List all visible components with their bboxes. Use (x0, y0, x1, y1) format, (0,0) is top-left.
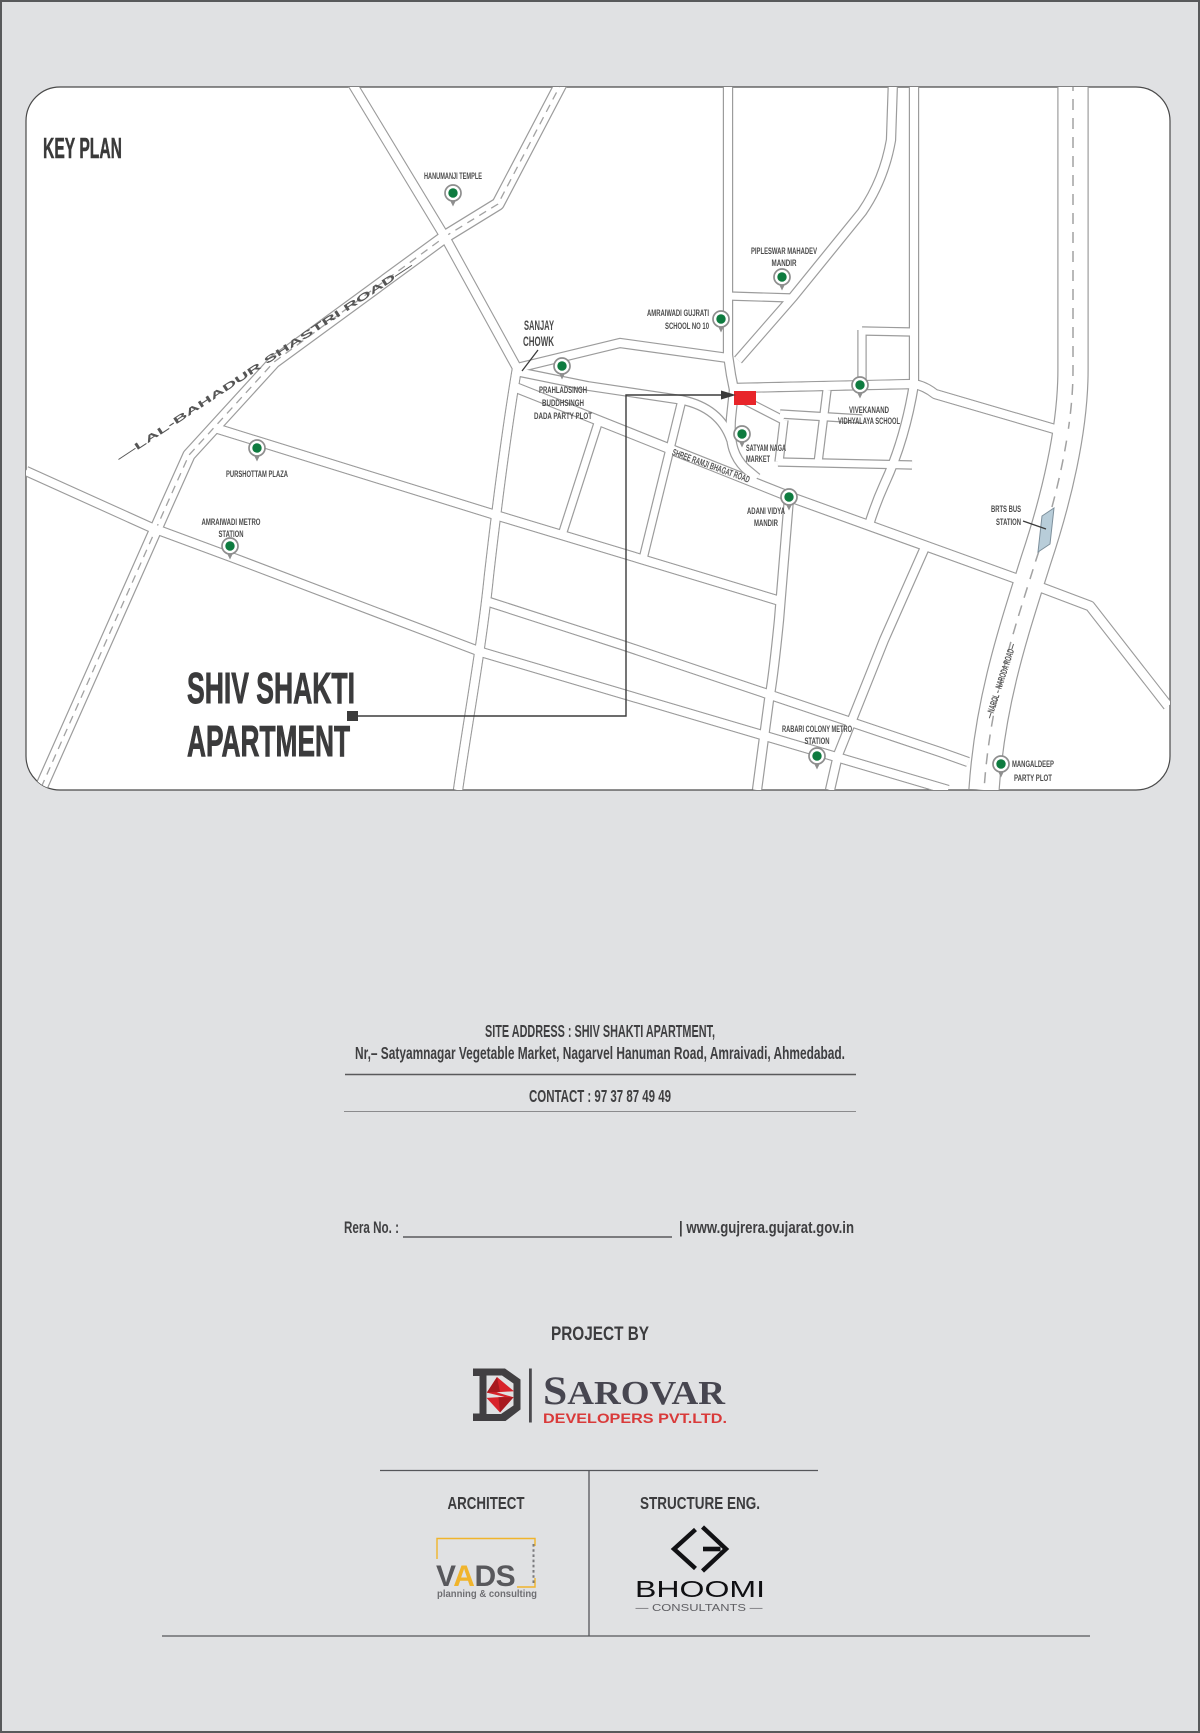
svg-text:BHOOMI: BHOOMI (635, 1576, 765, 1602)
svg-text:ADANI VIDYA: ADANI VIDYA (747, 506, 785, 517)
svg-text:AMRAIWADI GUJRATI: AMRAIWADI GUJRATI (647, 308, 709, 319)
svg-text:ARCHITECT: ARCHITECT (448, 1493, 525, 1513)
svg-text:Rera No. :: Rera No. : (344, 1219, 399, 1237)
svg-text:CONTACT : 97 37 87 49 49: CONTACT : 97 37 87 49 49 (529, 1086, 671, 1106)
svg-text:BRTS BUS: BRTS BUS (991, 504, 1021, 515)
svg-text:MANGALDEEP: MANGALDEEP (1012, 759, 1054, 770)
svg-text:SCHOOL NO 10: SCHOOL NO 10 (665, 321, 709, 332)
svg-text:SHIV SHAKTI: SHIV SHAKTI (187, 664, 355, 713)
svg-text:SAROVAR: SAROVAR (543, 1368, 725, 1413)
svg-text:BUDDHSINGH: BUDDHSINGH (542, 398, 584, 409)
svg-text:APARTMENT: APARTMENT (187, 717, 350, 766)
svg-text:VIVEKANAND: VIVEKANAND (849, 405, 889, 416)
svg-text:VIDHYALAYA SCHOOL: VIDHYALAYA SCHOOL (838, 416, 900, 427)
svg-text:SITE ADDRESS : SHIV SHAKTI APA: SITE ADDRESS : SHIV SHAKTI APARTMENT, (485, 1021, 715, 1041)
svg-text:planning & consulting: planning & consulting (437, 1588, 537, 1600)
svg-text:SANJAY: SANJAY (524, 317, 554, 333)
svg-text:— CONSULTANTS —: — CONSULTANTS — (636, 1603, 763, 1614)
svg-text:MARKET: MARKET (746, 454, 770, 465)
svg-text:Nr,– Satyamnagar Vegetable Mar: Nr,– Satyamnagar Vegetable Market, Nagar… (355, 1043, 845, 1063)
svg-text:DEVELOPERS PVT.LTD.: DEVELOPERS PVT.LTD. (543, 1410, 727, 1426)
svg-text:STRUCTURE ENG.: STRUCTURE ENG. (640, 1493, 760, 1513)
svg-text:KEY PLAN: KEY PLAN (43, 133, 122, 165)
svg-text:| www.gujrera.gujarat.gov.in: | www.gujrera.gujarat.gov.in (679, 1219, 854, 1237)
svg-text:PRAHLADSINGH: PRAHLADSINGH (539, 385, 587, 396)
svg-text:CHOWK: CHOWK (523, 333, 554, 349)
svg-text:PURSHOTTAM PLAZA: PURSHOTTAM PLAZA (226, 469, 288, 480)
svg-text:STATION: STATION (219, 529, 244, 540)
svg-text:STATION: STATION (996, 517, 1021, 528)
svg-text:MANDIR: MANDIR (754, 518, 778, 529)
svg-text:PIPLESWAR MAHADEV: PIPLESWAR MAHADEV (751, 246, 817, 257)
svg-text:SATYAM NAGA: SATYAM NAGA (746, 443, 786, 454)
svg-text:MANDIR: MANDIR (772, 258, 797, 269)
svg-text:RABARI COLONY METRO: RABARI COLONY METRO (782, 724, 852, 735)
svg-text:AMRAIWADI METRO: AMRAIWADI METRO (202, 517, 261, 528)
svg-text:STATION: STATION (805, 736, 830, 747)
svg-text:PARTY PLOT: PARTY PLOT (1014, 773, 1052, 784)
svg-text:DADA PARTY PLOT: DADA PARTY PLOT (534, 411, 592, 422)
svg-text:PROJECT BY: PROJECT BY (551, 1323, 649, 1345)
svg-text:HANUMANJI TEMPLE: HANUMANJI TEMPLE (424, 171, 482, 182)
